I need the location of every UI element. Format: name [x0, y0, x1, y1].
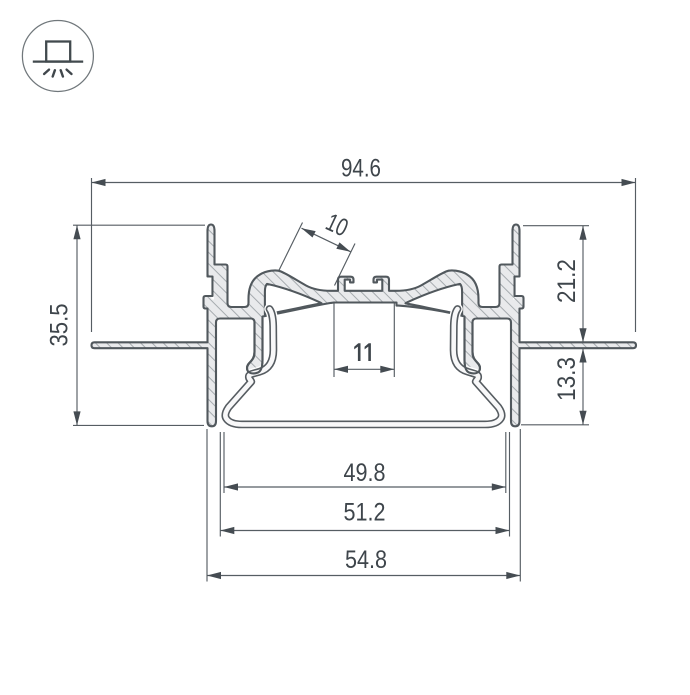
svg-text:94.6: 94.6	[341, 155, 381, 183]
svg-text:54.8: 54.8	[345, 546, 387, 574]
svg-text:21.2: 21.2	[553, 259, 581, 303]
svg-text:35.5: 35.5	[46, 304, 74, 347]
svg-text:13.3: 13.3	[553, 357, 581, 401]
svg-text:49.8: 49.8	[344, 459, 386, 487]
svg-text:51.2: 51.2	[344, 499, 386, 527]
